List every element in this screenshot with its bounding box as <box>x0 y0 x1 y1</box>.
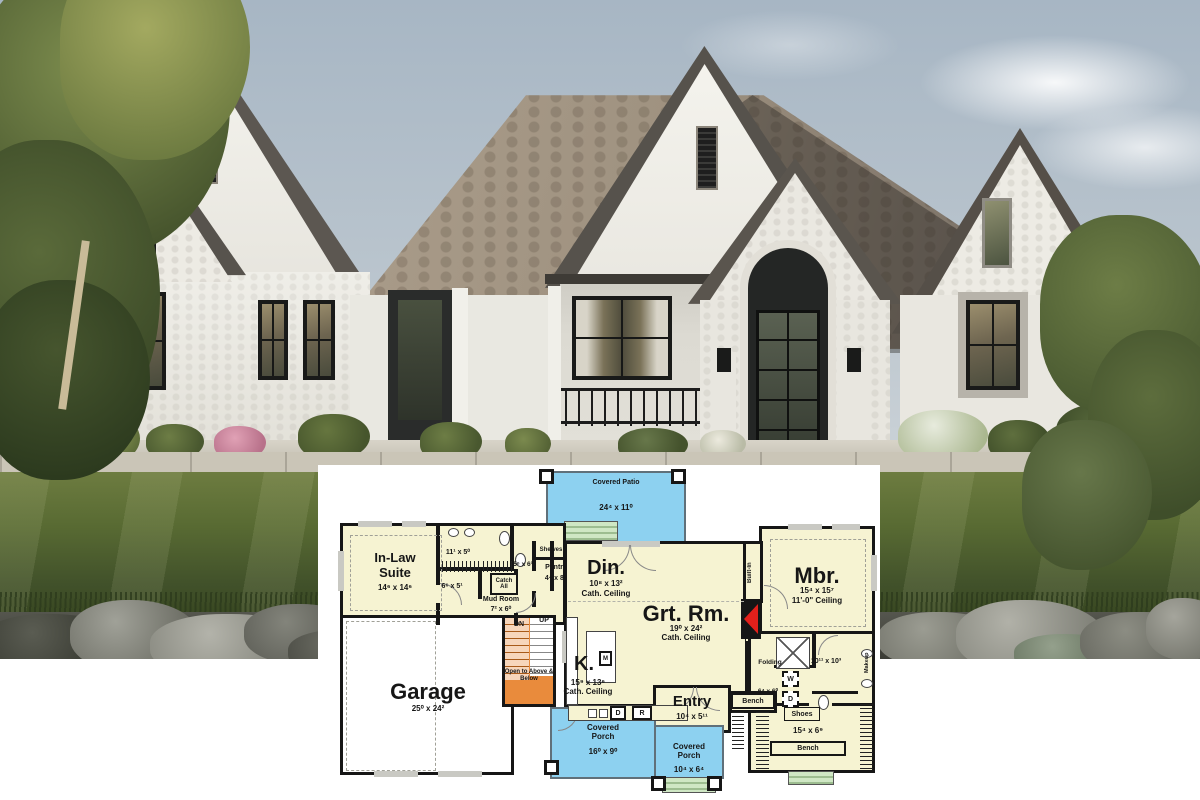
porch-column <box>544 760 559 775</box>
makeup-label: Makeup <box>864 643 870 683</box>
in-law-suite-dims: 14⁶ x 14⁶ <box>378 583 412 592</box>
lantern <box>717 348 731 372</box>
range-box: R <box>632 706 652 720</box>
toilet <box>499 531 510 546</box>
right-lower-window <box>966 300 1020 390</box>
closet-rod <box>860 703 873 769</box>
stairs-up-label: UP <box>539 617 549 625</box>
cloud <box>1030 105 1200 190</box>
shoes-label: Shoes <box>791 711 812 718</box>
dining-ceiling: Cath. Ceiling <box>582 589 631 598</box>
window-mullion <box>262 304 284 376</box>
porch-window <box>572 296 672 380</box>
floor-plan: Covered Patio 24⁴ x 11⁰ In-Law Suite 14⁶… <box>318 465 880 800</box>
dining-label: Din. <box>587 557 625 580</box>
powder-dims: 5⁶ x 6³ <box>513 561 533 568</box>
in-law-suite-label: In-Law Suite <box>360 551 430 581</box>
window-mullion <box>970 304 1016 386</box>
folding-label: Folding <box>758 659 781 666</box>
stairs-down-label: DN <box>514 621 524 629</box>
garage-door-opening <box>438 771 482 777</box>
window-mullion <box>307 304 331 376</box>
master-label: Mbr. <box>794 563 839 588</box>
great-room-label: Grt. Rm. <box>643 601 730 626</box>
master-bath-dims: 10¹¹ x 10³ <box>811 658 841 666</box>
window-opening <box>871 555 877 591</box>
microwave-box: M <box>599 651 612 666</box>
window-opening <box>788 524 822 530</box>
porch-column <box>651 776 666 791</box>
kitchen-ceiling: Cath. Ceiling <box>564 687 613 696</box>
in-law-bath-dims: 11¹ x 5⁰ <box>446 549 470 557</box>
dining-dims: 10⁸ x 13² <box>589 579 622 588</box>
garage-dims: 25⁰ x 24² <box>412 704 445 713</box>
patio-steps <box>564 521 618 541</box>
counter-row <box>568 705 688 721</box>
mud-room-dims: 7² x 6⁰ <box>491 606 512 614</box>
window-opening <box>358 521 392 527</box>
dryer-box: D <box>782 691 799 707</box>
wall <box>812 691 858 694</box>
sink-box <box>588 709 597 718</box>
master-dims: 15⁴ x 15⁷ <box>800 586 834 595</box>
porch-side-dims: 10⁴ x 6⁴ <box>674 765 704 774</box>
in-law-closet-dims: 6⁶ x 5¹ <box>441 583 462 591</box>
closet-rod <box>756 709 769 769</box>
window-opening <box>338 551 344 591</box>
pantry-label: Pantry <box>545 564 567 572</box>
porch-front-label: Covered Porch <box>577 723 629 741</box>
microwave-label: M <box>603 656 608 662</box>
porch-side-label: Covered Porch <box>663 742 715 760</box>
dishwasher-label: D <box>615 710 620 717</box>
porch-front-dims: 16⁰ x 9⁰ <box>589 747 618 756</box>
patio-column <box>671 469 686 484</box>
porch-column <box>707 776 722 791</box>
gable-vent <box>696 126 718 190</box>
closet-rod <box>732 711 744 749</box>
great-room-dims: 19⁰ x 24² <box>670 624 703 633</box>
window-opening <box>832 524 860 530</box>
catch-all-cubby: Catch All <box>490 573 518 595</box>
stair-upper-run <box>530 618 553 676</box>
master-closet-dims: 15⁴ x 6⁹ <box>793 726 823 735</box>
range-label: R <box>639 710 644 717</box>
shelves-label: Shelves <box>540 547 563 554</box>
washer-label: W <box>787 676 794 683</box>
wall <box>478 571 482 599</box>
patio-column <box>539 469 554 484</box>
mid-window-2 <box>303 300 335 380</box>
house-plan-page: Covered Patio 24⁴ x 11⁰ In-Law Suite 14⁶… <box>0 0 1200 800</box>
closet-bench-label: Bench <box>797 745 818 752</box>
washer-box: W <box>782 671 799 687</box>
garage-label: Garage <box>390 679 466 704</box>
right-upper-window <box>982 198 1012 268</box>
closet-bench-box: Bench <box>770 741 846 756</box>
master-ceiling: 11'-0" Ceiling <box>792 596 842 605</box>
window-mullion <box>576 300 668 376</box>
kitchen-dims: 15⁹ x 13⁶ <box>571 678 605 687</box>
mud-room-label: Mud Room <box>483 596 519 604</box>
window-opening <box>402 521 426 527</box>
closet-rod <box>483 561 514 572</box>
dryer-label: D <box>788 696 793 703</box>
dishwasher-box: D <box>610 706 626 720</box>
porch-post <box>548 286 561 462</box>
entry-dims: 10⁴ x 5¹¹ <box>676 712 708 721</box>
laundry-dims: 6⁴ x 6⁰ <box>758 688 778 695</box>
sink <box>448 528 459 537</box>
rock <box>1146 598 1200 659</box>
garage-door-opening <box>374 771 418 777</box>
shoes-box: Shoes <box>784 707 820 721</box>
pantry-dims: 4⁴ x 8⁵ <box>545 575 567 583</box>
side-steps <box>788 771 834 785</box>
mid-window-1 <box>258 300 288 380</box>
closet-rod <box>442 561 480 572</box>
built-in-cabinet <box>743 541 763 603</box>
entry-bench-label: Bench <box>742 698 763 705</box>
sink-box <box>599 709 608 718</box>
covered-patio-label: Covered Patio <box>589 479 643 487</box>
wall <box>536 557 566 560</box>
entry-label: Entry <box>673 693 711 710</box>
great-room-ceiling: Cath. Ceiling <box>662 633 711 642</box>
lantern <box>847 348 861 372</box>
sink <box>464 528 475 537</box>
stairs-note: Open to Above & Below <box>504 669 554 683</box>
covered-patio-dims: 24⁴ x 11⁰ <box>599 503 632 512</box>
dark-panel-glass <box>398 300 442 420</box>
catch-all-label: Catch All <box>492 578 516 590</box>
kitchen-label: K. <box>574 653 594 676</box>
built-in-label: Built-In <box>747 547 753 599</box>
